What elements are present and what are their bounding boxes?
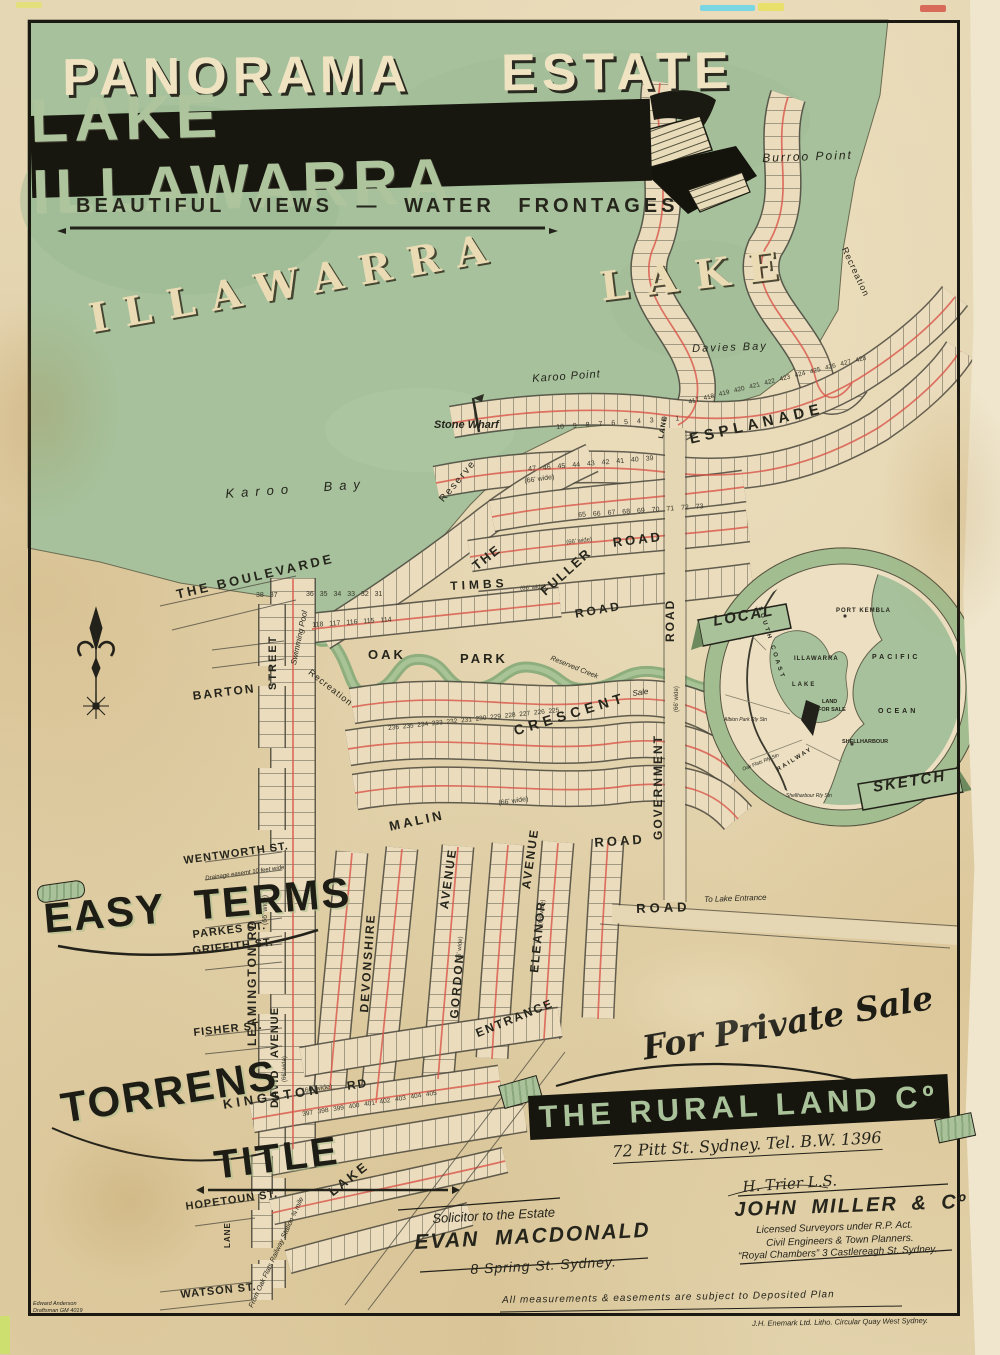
lane-label: LANE [224,1222,232,1248]
inset-shellharbour: SHELLHARBOUR [842,740,888,746]
inset-pacific: PACIFIC [872,654,920,661]
street-malin-road: ROAD [594,832,645,848]
street-kingston-rd: RD [346,1077,369,1092]
street-government: GOVERNMENT [652,734,664,840]
inset-shellharbour-station: Shellharbour Rly Stn [786,794,832,799]
government-width: (66' wide) [674,686,680,712]
street-barton-street-vertical: STREET [268,635,279,690]
inset-land-for-sale-2: FOR SALE [818,708,846,714]
street-government-road: ROAD [664,599,676,642]
scan-artifact [0,1316,10,1354]
inset-ocean: OCEAN [878,708,918,715]
scan-artifact [920,5,946,12]
compass-rose [78,608,113,719]
stone-wharf-label: Stone Wharf [434,420,499,431]
street-timbs: TIMBS [450,577,508,592]
scan-artifact [700,5,755,11]
draftsman-credit-2: Draftsman GM 4019 [33,1309,83,1315]
poster-subtitle: BEAUTIFUL VIEWS — WATER FRONTAGES [76,196,678,216]
oak-park-park: PARK [460,652,508,665]
inset-illawarra: ILLAWARRA [794,656,839,662]
oak-park-oak: OAK [368,648,406,661]
inset-land-for-sale-1: LAND [822,700,837,706]
estate-poster: PANORAMA ESTATE LAKE ILLAWARRA BEAUTIFUL… [0,0,1000,1355]
street-road-to-lake: ROAD [636,900,691,915]
burroo-point-label: Burroo Point [762,149,853,164]
scan-artifact [16,2,42,8]
draftsman-credit-1: Edward Anderson [33,1302,77,1308]
inset-lake: LAKE [792,682,816,688]
lot-row-boulevarde: 38 37 [256,592,278,599]
title-banner: LAKE ILLAWARRA [30,99,652,198]
government-road [664,428,686,902]
inset-albion-station: Albion Park Rly Stn [724,718,767,723]
david-width: (66' wide) [282,1056,288,1082]
lot-row-boulevarde-b: 36 35 34 33 32 31 [306,591,382,598]
inset-port-kembla: PORT KEMBLA [836,608,891,614]
scan-artifact [758,3,784,11]
